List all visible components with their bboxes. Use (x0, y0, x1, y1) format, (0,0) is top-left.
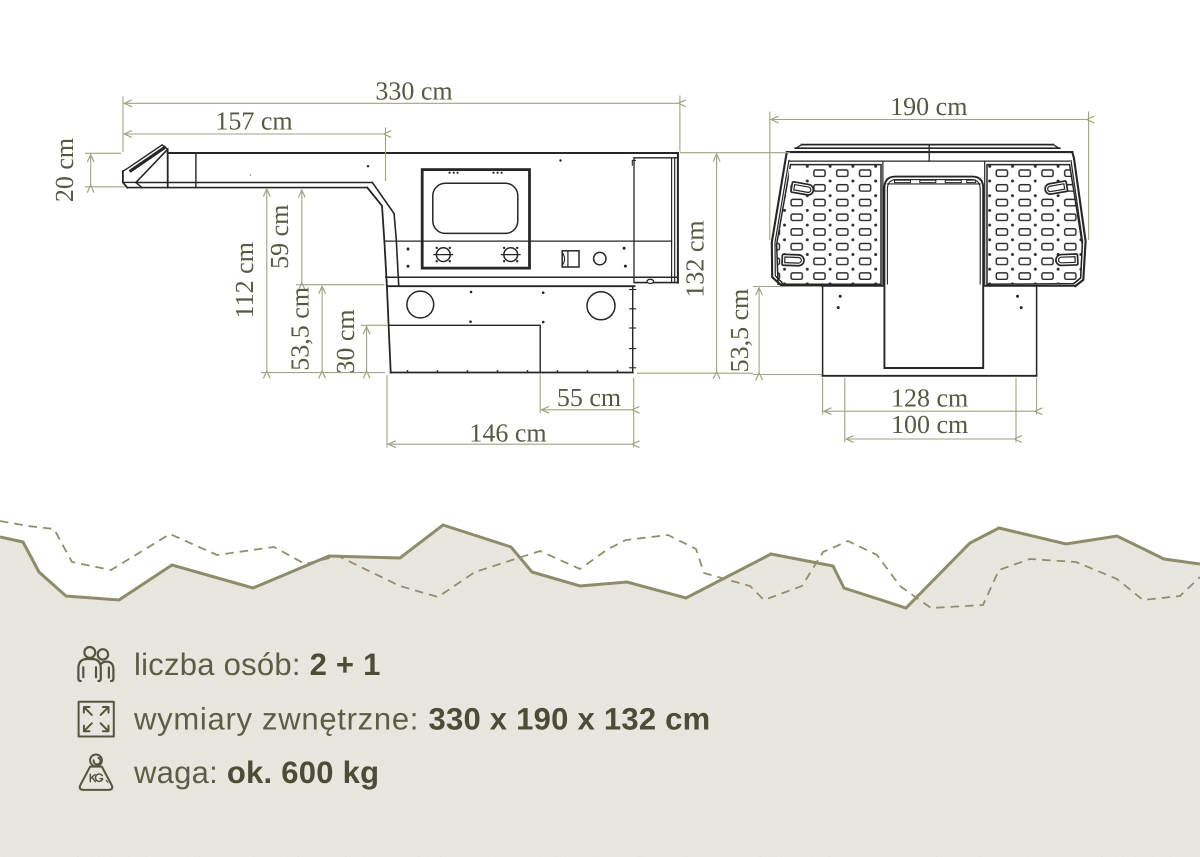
svg-text:waga: ok. 600 kg: waga: ok. 600 kg (133, 755, 379, 790)
svg-text:132 cm: 132 cm (680, 220, 709, 297)
svg-text:30 cm: 30 cm (331, 309, 360, 373)
svg-text:128 cm: 128 cm (891, 384, 968, 413)
svg-text:20 cm: 20 cm (50, 138, 79, 202)
svg-text:59 cm: 59 cm (265, 205, 294, 269)
svg-text:53,5 cm: 53,5 cm (286, 287, 315, 371)
svg-text:wymiary zwnętrzne: 330 x 190 x: wymiary zwnętrzne: 330 x 190 x 132 cm (133, 702, 711, 737)
svg-text:146 cm: 146 cm (469, 418, 546, 447)
svg-text:157 cm: 157 cm (215, 107, 292, 136)
svg-text:53,5 cm: 53,5 cm (725, 289, 754, 373)
svg-text:330 cm: 330 cm (375, 76, 452, 105)
svg-text:112 cm: 112 cm (230, 242, 259, 318)
svg-text:55 cm: 55 cm (557, 383, 621, 412)
svg-text:liczba osób: 2 + 1: liczba osób: 2 + 1 (134, 647, 381, 682)
svg-text:100 cm: 100 cm (891, 410, 968, 439)
svg-text:190 cm: 190 cm (890, 92, 967, 121)
